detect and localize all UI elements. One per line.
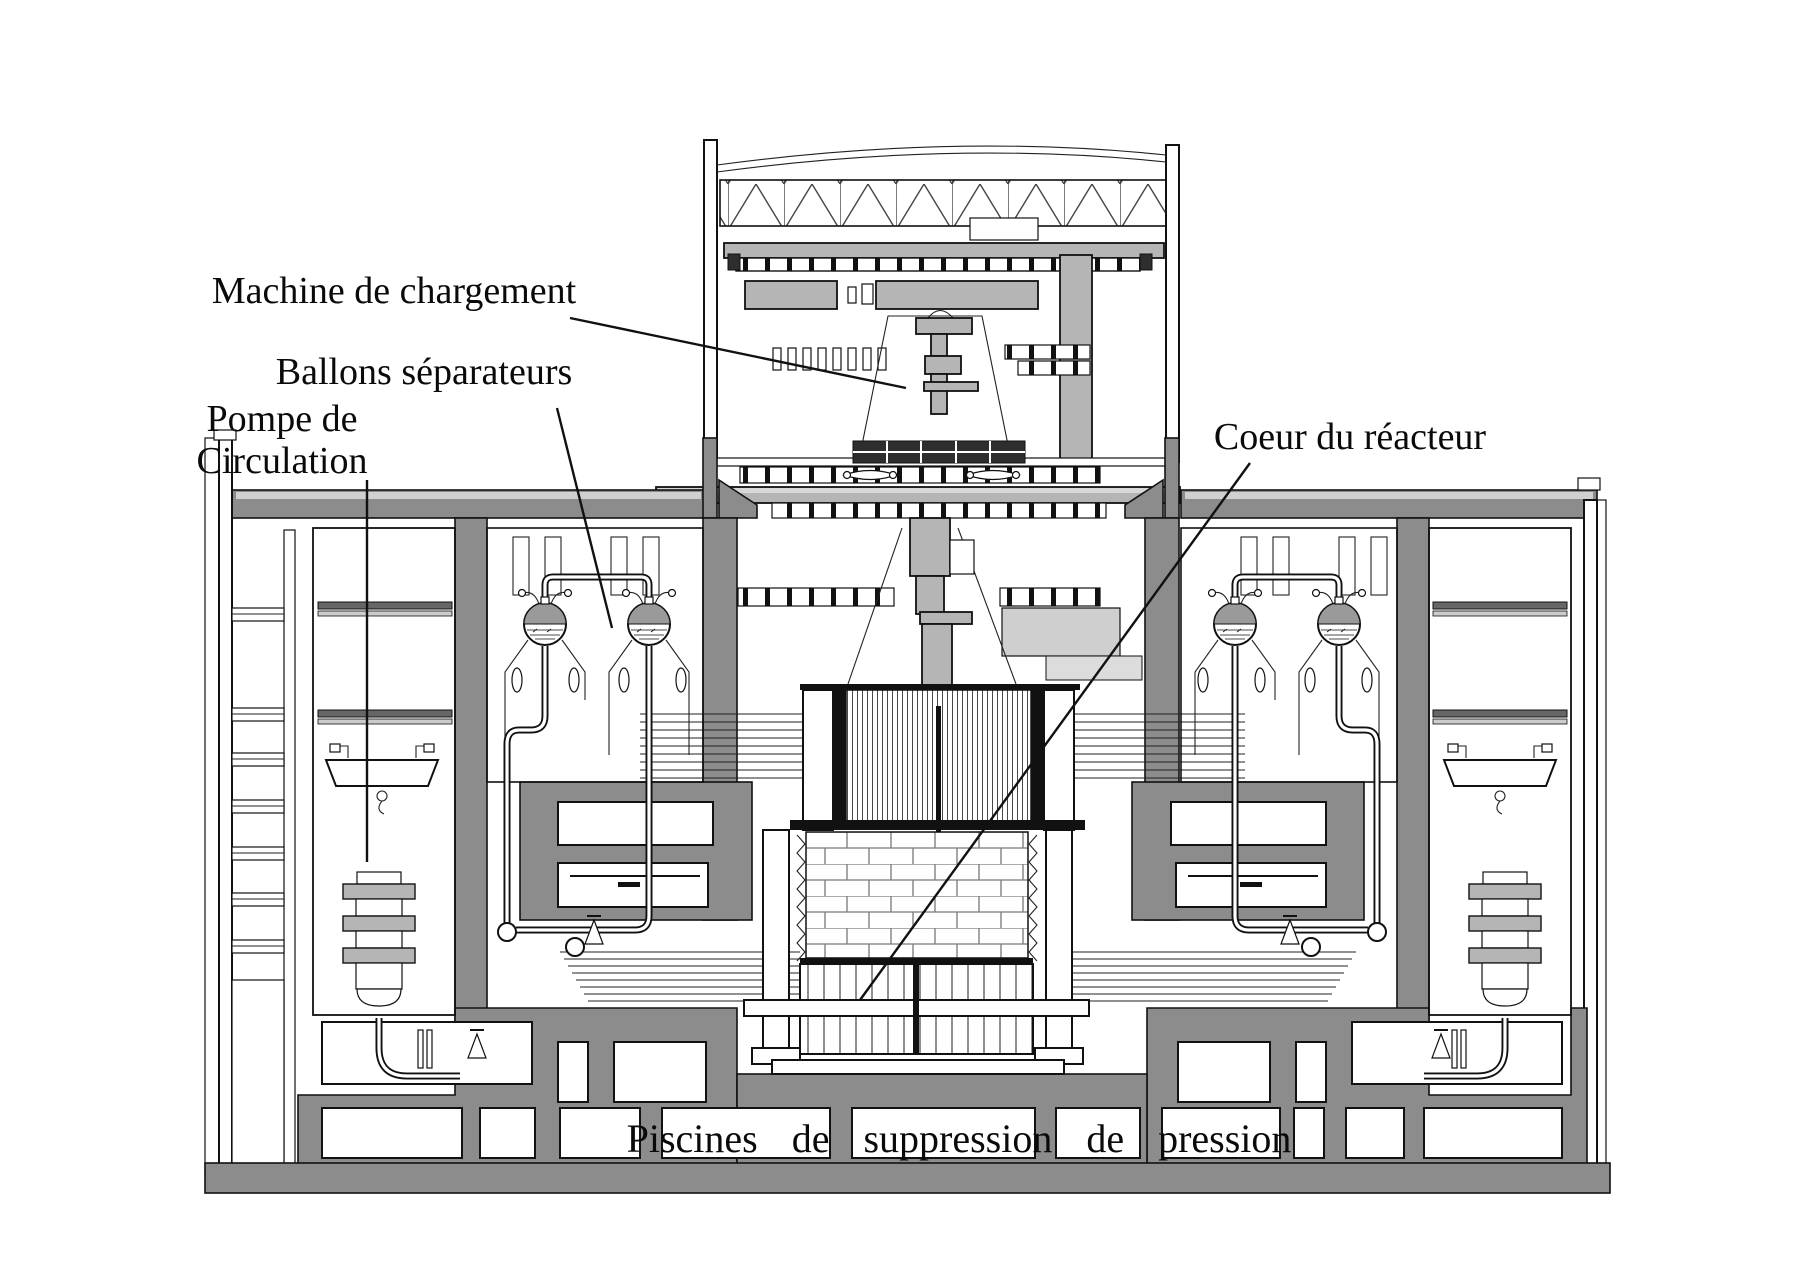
crane-trolley: [1444, 744, 1556, 814]
pool-room: [1178, 1042, 1270, 1102]
roof-truss: [720, 180, 1166, 226]
hall-left-wall: [704, 140, 717, 462]
hall-block-left: [745, 281, 837, 309]
equipment-block-right: [1132, 782, 1364, 920]
left-outer-wall: [219, 438, 232, 1175]
crane-trolley: [326, 744, 438, 814]
hall-substructure: [738, 518, 1142, 686]
crane-cab: [970, 218, 1038, 240]
separator-drum: [1313, 590, 1366, 646]
pool-room: [558, 1042, 588, 1102]
label-machine-de-chargement: Machine de chargement: [212, 270, 577, 312]
label-pompe-de-circulation-line2: Circulation: [197, 440, 368, 482]
pool-room: [1294, 1108, 1324, 1158]
separator-drum: [623, 590, 676, 646]
label-pompe-de-circulation-line1: Pompe de: [207, 398, 358, 440]
water-pipe-fan-right: [1047, 952, 1356, 1001]
core-bellows-left: [797, 835, 805, 961]
separator-drum: [519, 590, 572, 646]
pool-room: [1296, 1042, 1326, 1102]
pool-room: [614, 1042, 706, 1102]
pool-room: [1424, 1108, 1562, 1158]
core-graphite-bricks: [806, 832, 1028, 958]
circulation-pump-right: [1469, 872, 1541, 1006]
divider-wall-right: [1397, 518, 1429, 1074]
standpipe-column: [910, 518, 974, 686]
label-coeur-du-reacteur: Coeur du réacteur: [1214, 416, 1487, 458]
left-ladder-wall: [232, 530, 295, 1175]
reactor-core: [744, 684, 1089, 1074]
refueling-machine: [862, 311, 1008, 446]
pool-room: [480, 1108, 535, 1158]
hall-railing: [773, 348, 886, 370]
equipment-block-left: [520, 782, 752, 920]
reactor-cross-section-diagram: Machine de chargement Ballons séparateur…: [0, 0, 1800, 1272]
pump-room-right: [1424, 528, 1571, 1076]
divider-wall-left: [455, 518, 487, 1074]
hall-right-wall: [1166, 145, 1179, 462]
circulation-pump-left: [343, 872, 415, 1006]
foundation-slab: [205, 1163, 1610, 1193]
core-bellows-right: [1029, 835, 1037, 961]
pool-room: [1346, 1108, 1404, 1158]
shield-blocks: [853, 441, 1025, 463]
label-ballons-separateurs: Ballons séparateurs: [276, 351, 573, 393]
hall-block-right: [876, 281, 1038, 309]
separator-drum: [1209, 590, 1262, 646]
crane-bridge: [724, 243, 1164, 258]
label-piscines-de-suppression: Piscines de suppression de pression: [627, 1116, 1292, 1161]
hall-roof-arch: [717, 146, 1166, 172]
pool-room: [322, 1108, 462, 1158]
reactor-hall: [656, 140, 1180, 518]
